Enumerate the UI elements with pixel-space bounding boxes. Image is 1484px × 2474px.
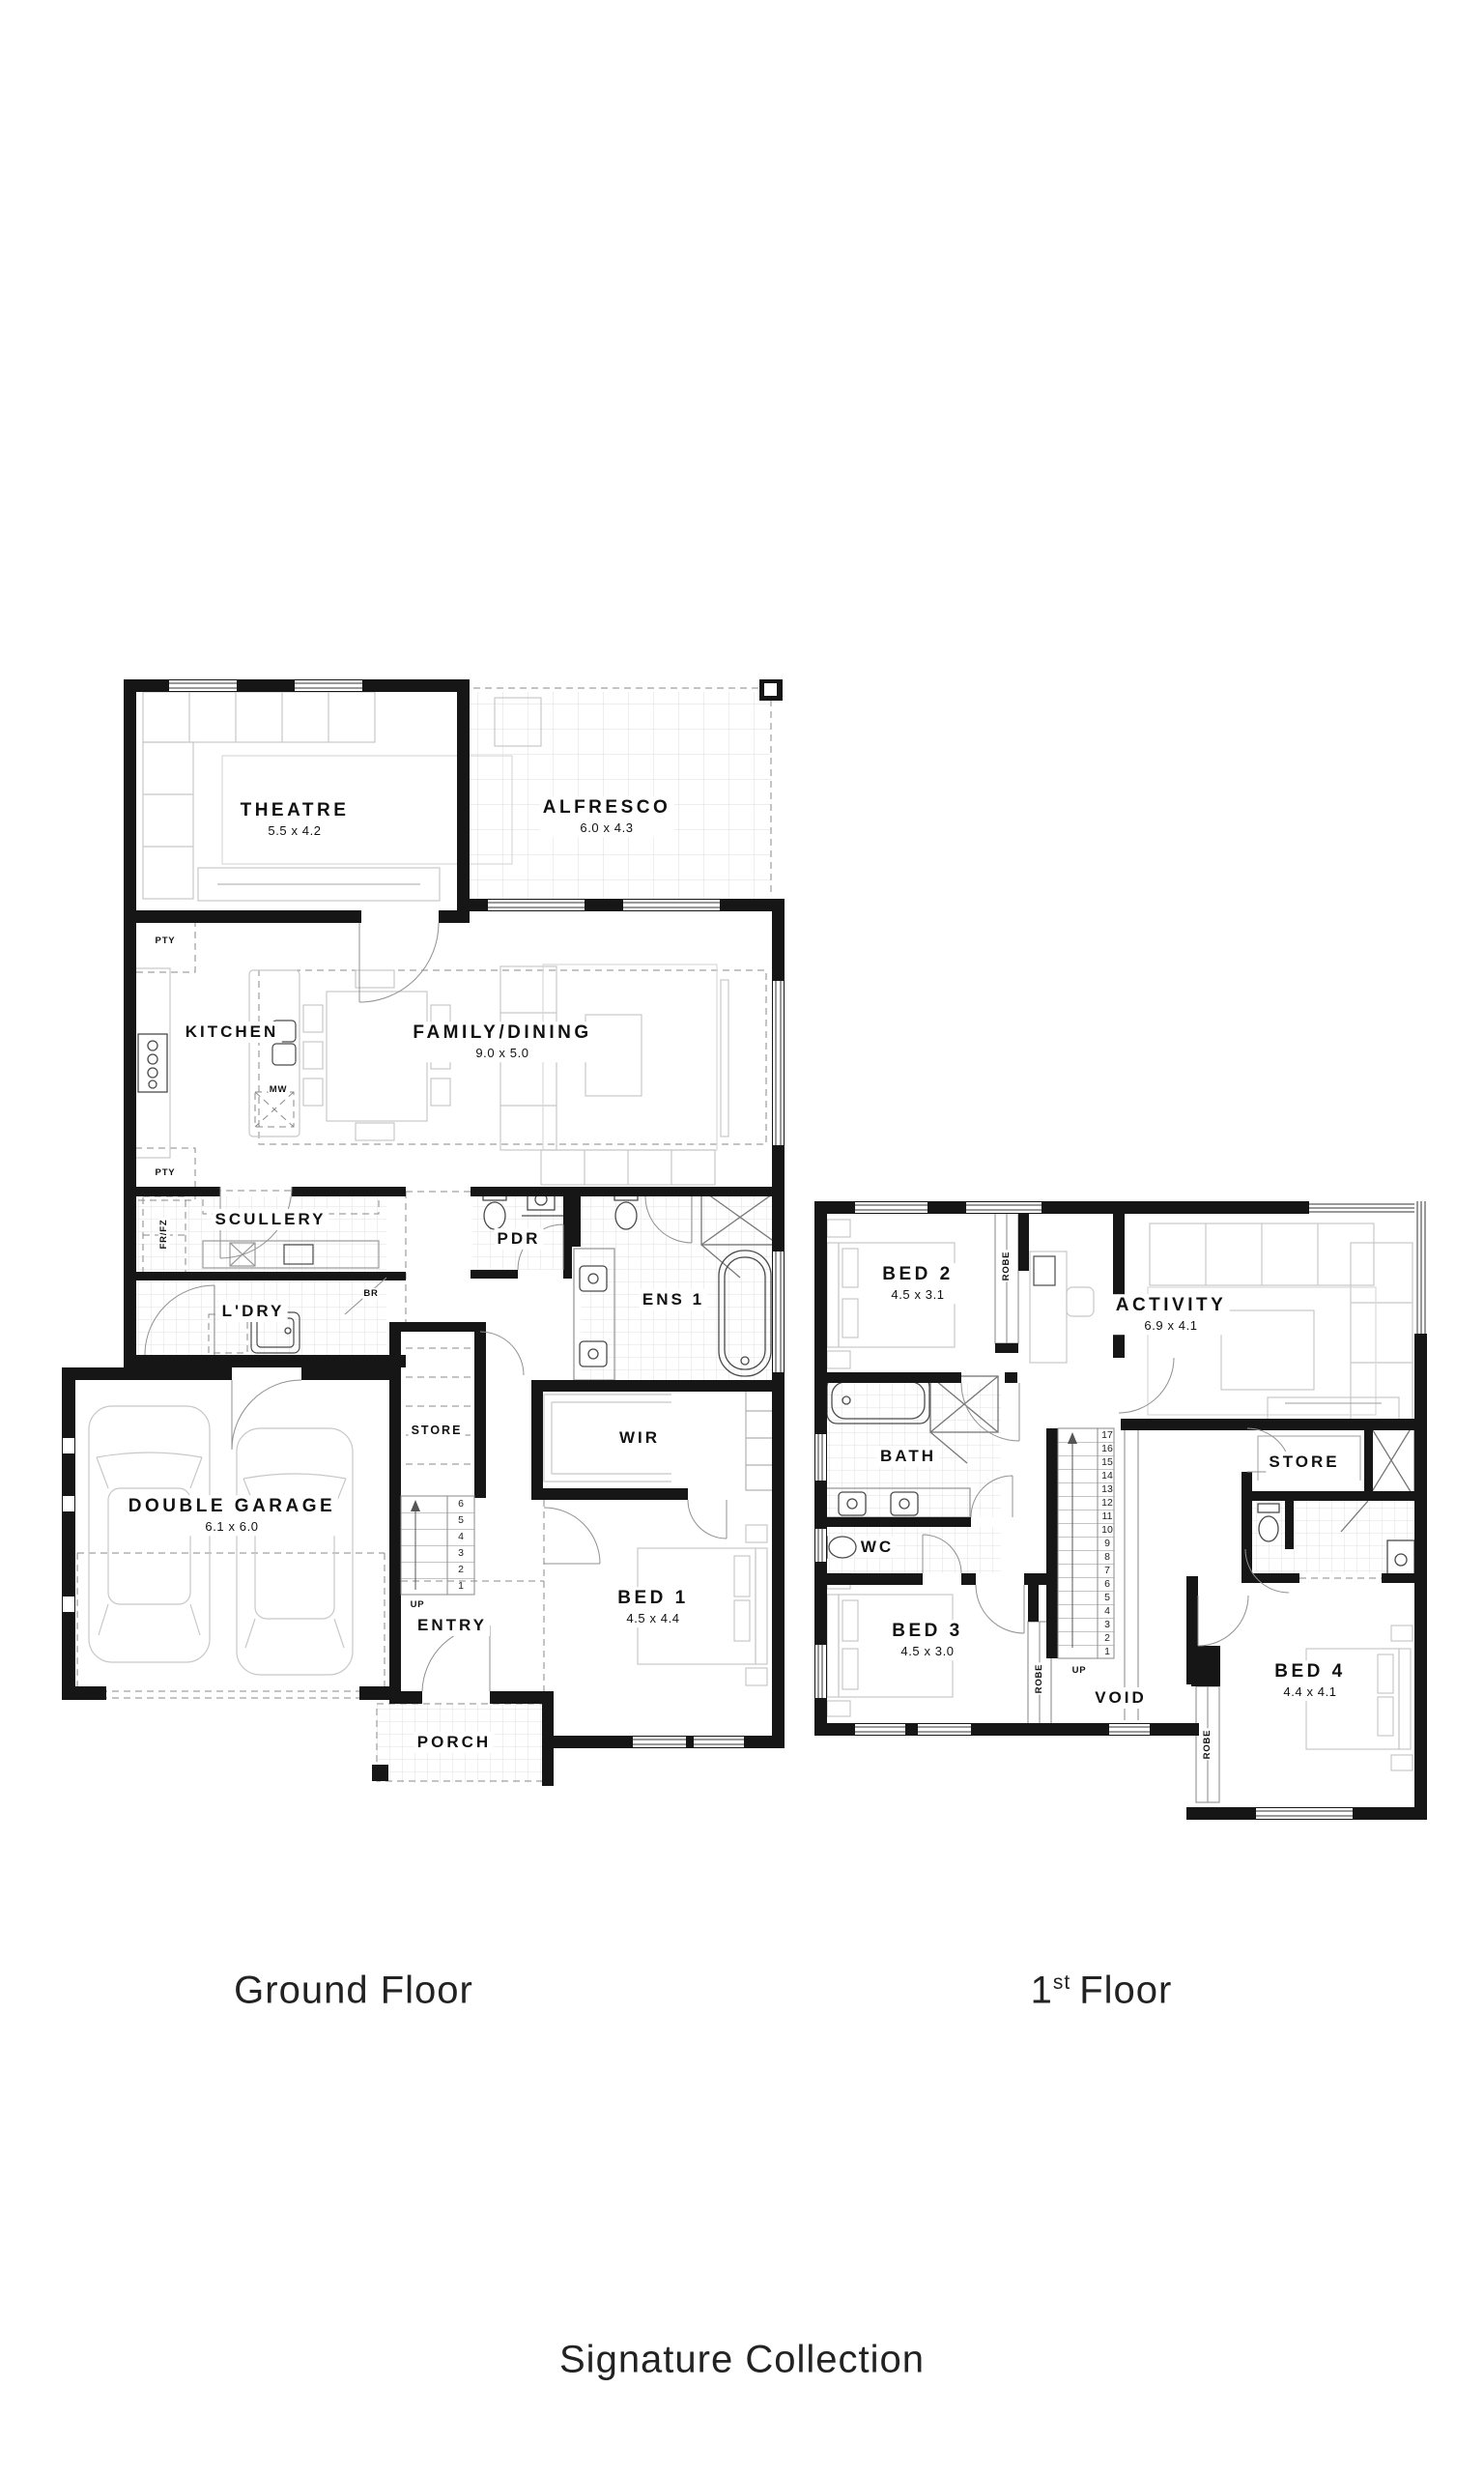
- stair-number: 17: [1101, 1429, 1113, 1441]
- stair-number: 5: [1104, 1592, 1110, 1603]
- tv-cabinet: [541, 1150, 715, 1185]
- room-label-bath: BATH: [877, 1446, 939, 1467]
- activity-tv-cabinet: [1268, 1397, 1399, 1421]
- label-text: PTY: [156, 935, 176, 947]
- stair-number: 4: [458, 1531, 464, 1542]
- stair-number: 2: [458, 1564, 464, 1575]
- stair-number: 8: [1104, 1551, 1110, 1563]
- stair-number: 10: [1101, 1524, 1113, 1536]
- room-label-bed2: BED 2 4.5 x 3.1: [879, 1263, 956, 1304]
- stair-number: 2: [1104, 1632, 1110, 1644]
- stair-number: 1: [1104, 1646, 1110, 1657]
- room-name: ALFRESCO: [543, 796, 671, 820]
- room-label-theatre: THEATRE 5.5 x 4.2: [238, 799, 353, 840]
- label-pantry-top: PTY: [155, 935, 177, 947]
- stair-number: 4: [1104, 1605, 1110, 1617]
- label-text: UP: [411, 1599, 425, 1611]
- room-label-scullery: SCULLERY: [213, 1209, 329, 1230]
- room-dims: 5.5 x 4.2: [241, 823, 350, 840]
- room-dims: 4.5 x 4.4: [617, 1611, 688, 1627]
- ff-tiled-floors: [827, 1383, 1414, 1573]
- room-label-double-garage: DOUBLE GARAGE 6.1 x 6.0: [126, 1495, 338, 1536]
- label-up-first: UP: [1071, 1665, 1088, 1677]
- label-text: MW: [270, 1084, 287, 1096]
- cooktop: [138, 1034, 167, 1092]
- room-name: KITCHEN: [185, 1021, 279, 1043]
- room-name: BATH: [880, 1446, 936, 1467]
- room-label-family-dining: FAMILY/DINING 9.0 x 5.0: [410, 1021, 594, 1062]
- room-name: STORE: [1269, 1452, 1339, 1473]
- label-text: ROBE: [1034, 1664, 1045, 1694]
- room-name: SCULLERY: [215, 1209, 327, 1230]
- ens2-toilet: [1258, 1504, 1279, 1541]
- room-label-bed4: BED 4 4.4 x 4.1: [1271, 1660, 1348, 1701]
- floorplan-page: THEATRE 5.5 x 4.2 ALFRESCO 6.0 x 4.3 KIT…: [0, 0, 1484, 2474]
- tv-panel: [721, 980, 728, 1136]
- room-name: BED 3: [892, 1620, 962, 1644]
- room-name: BED 1: [617, 1587, 688, 1611]
- room-label-wc: WC: [858, 1537, 897, 1558]
- room-dims: 4.5 x 3.1: [882, 1287, 953, 1304]
- room-name: PORCH: [417, 1732, 491, 1753]
- caption-ordinal: st: [1053, 1971, 1070, 1994]
- kitchen-island: [249, 970, 300, 1136]
- room-label-bed1: BED 1 4.5 x 4.4: [614, 1587, 691, 1627]
- room-name: THEATRE: [241, 799, 350, 823]
- label-robe-bed4: ROBE: [1202, 1729, 1213, 1761]
- room-label-void: VOID: [1092, 1687, 1150, 1709]
- theatre-screen-cabinet: [198, 868, 440, 901]
- label-text: PTY: [156, 1167, 176, 1179]
- label-microwave: MW: [269, 1084, 288, 1096]
- room-dims: 4.4 x 4.1: [1274, 1684, 1345, 1701]
- room-label-store-ground: STORE: [409, 1423, 466, 1438]
- room-name: WC: [861, 1537, 894, 1558]
- room-name: BED 2: [882, 1263, 953, 1287]
- room-label-activity: ACTIVITY 6.9 x 4.1: [1113, 1294, 1230, 1335]
- activity-sofa-top: [1150, 1223, 1374, 1285]
- void-balustrade: [1125, 1428, 1138, 1720]
- label-text: UP: [1072, 1665, 1087, 1677]
- stair-number: 9: [1104, 1538, 1110, 1549]
- stair-number: 7: [1104, 1565, 1110, 1576]
- room-label-entry: ENTRY: [414, 1615, 490, 1636]
- label-robe-bed3: ROBE: [1034, 1663, 1045, 1695]
- room-name: ENTRY: [417, 1615, 487, 1636]
- label-broom: BR: [362, 1288, 379, 1300]
- room-name: DOUBLE GARAGE: [128, 1495, 335, 1519]
- caption-number: 1: [1031, 1970, 1053, 2012]
- room-name: WIR: [619, 1427, 660, 1449]
- dressing-drawers: [746, 1384, 775, 1490]
- room-name: FAMILY/DINING: [413, 1021, 591, 1046]
- caption-collection: Signature Collection: [559, 2339, 925, 2382]
- study-desk: [1030, 1251, 1094, 1363]
- room-name: BED 4: [1274, 1660, 1345, 1684]
- stair-number: 16: [1101, 1443, 1113, 1454]
- caption-first-floor: 1stFloor: [1031, 1970, 1173, 2013]
- label-pantry-bottom: PTY: [155, 1167, 177, 1179]
- room-label-ldry: L'DRY: [219, 1301, 288, 1322]
- room-label-kitchen: KITCHEN: [183, 1021, 282, 1043]
- caption-ground-floor: Ground Floor: [234, 1970, 473, 2013]
- room-dims: 9.0 x 5.0: [413, 1046, 591, 1062]
- stair-number: 13: [1101, 1483, 1113, 1495]
- room-label-store-first: STORE: [1266, 1452, 1342, 1473]
- kitchen-bench: [135, 968, 170, 1158]
- room-label-porch: PORCH: [414, 1732, 494, 1753]
- caption-text: Ground Floor: [234, 1970, 473, 2012]
- activity-coffee-table: [1221, 1310, 1314, 1390]
- stair-number: 6: [1104, 1578, 1110, 1590]
- label-robe-bed2: ROBE: [1001, 1251, 1013, 1282]
- garage-car-right: [237, 1428, 353, 1675]
- room-dims: 6.0 x 4.3: [543, 820, 671, 837]
- stair-number: 1: [458, 1580, 464, 1592]
- room-label-wir: WIR: [616, 1427, 663, 1449]
- stair-number: 3: [1104, 1619, 1110, 1630]
- room-label-pdr: PDR: [495, 1228, 544, 1250]
- room-name: PDR: [498, 1228, 541, 1250]
- label-text: ROBE: [1202, 1730, 1213, 1760]
- stair-number: 12: [1101, 1497, 1113, 1509]
- room-dims: 6.9 x 4.1: [1116, 1318, 1227, 1335]
- stair-number: 3: [458, 1547, 464, 1559]
- stair-number: 5: [458, 1514, 464, 1526]
- room-name: L'DRY: [222, 1301, 285, 1322]
- room-label-bed3: BED 3 4.5 x 3.0: [889, 1620, 965, 1660]
- stair-number: 15: [1101, 1456, 1113, 1468]
- stair-number: 14: [1101, 1470, 1113, 1482]
- caption-word: Floor: [1079, 1970, 1172, 2012]
- label-text: FR/FZ: [158, 1220, 170, 1250]
- room-name: VOID: [1095, 1687, 1147, 1709]
- room-label-ens1: ENS 1: [640, 1289, 707, 1310]
- label-up-ground: UP: [410, 1599, 426, 1611]
- room-dims: 4.5 x 3.0: [892, 1644, 962, 1660]
- room-name: ACTIVITY: [1116, 1294, 1227, 1318]
- room-name: ENS 1: [642, 1289, 704, 1310]
- stair-number: 11: [1102, 1510, 1113, 1522]
- label-fridge-freezer: FR/FZ: [158, 1219, 170, 1251]
- caption-text: Signature Collection: [559, 2339, 925, 2381]
- floorplan-drawing: [0, 0, 1484, 2474]
- stair-number: 6: [458, 1498, 464, 1510]
- room-name: STORE: [412, 1423, 463, 1438]
- room-label-alfresco: ALFRESCO 6.0 x 4.3: [540, 796, 674, 837]
- label-text: ROBE: [1001, 1251, 1013, 1281]
- label-text: BR: [363, 1288, 378, 1300]
- room-dims: 6.1 x 6.0: [128, 1519, 335, 1536]
